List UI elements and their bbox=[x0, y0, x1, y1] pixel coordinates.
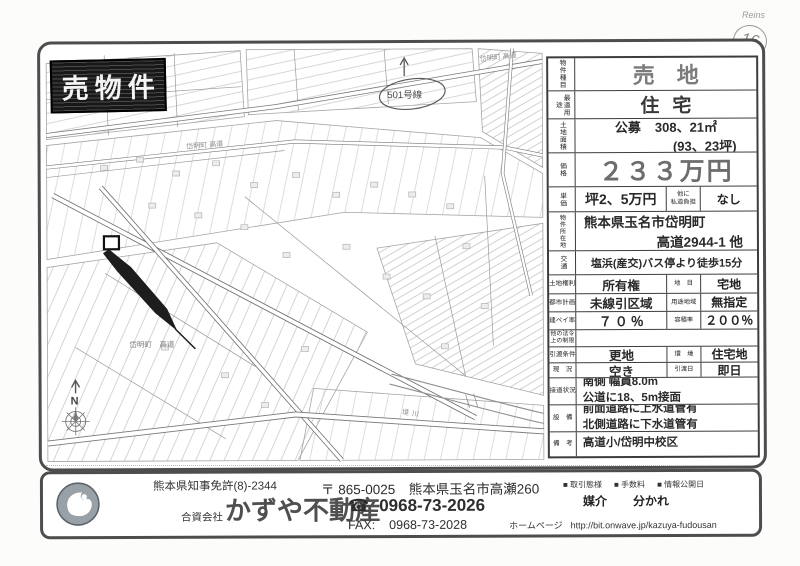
row-property-type: 物件種目 売地 bbox=[548, 57, 756, 91]
unit-price-label: 単価 bbox=[558, 192, 566, 207]
separator-dotted-line bbox=[46, 465, 752, 466]
land-area-value: 公募308、21㎡ bbox=[615, 118, 717, 135]
handover-date-value: 即日 bbox=[701, 362, 757, 376]
road-access-label: 接道状況 bbox=[550, 388, 576, 396]
for-sale-stamp-text: 売物件 bbox=[61, 65, 161, 106]
zoning-label: 用途地域 bbox=[666, 294, 701, 311]
transport-value: 塩浜(産交)バス停より徒歩15分 bbox=[591, 254, 742, 271]
location-line1: 熊本県玉名市岱明町 bbox=[576, 211, 706, 231]
row-location: 物件所在地 熊本県玉名市岱明町 高道2944-1 他 bbox=[549, 211, 757, 251]
scanned-property-flyer: Reins 16 bbox=[0, 0, 800, 566]
svg-text:501号線: 501号線 bbox=[387, 89, 422, 101]
company-logo bbox=[55, 481, 101, 527]
row-remarks: 備 考 高道小/岱明中校区 bbox=[550, 431, 758, 456]
disclosure-date-label: ■ 情報公開日 bbox=[657, 480, 704, 489]
city-planning-label: 都市計画 bbox=[549, 299, 575, 307]
listing-table: 物件種目 売地 最適用途 住宅 土地面積 公募308、21㎡ (93、23坪) … bbox=[546, 55, 760, 458]
homepage-label: ホームページ bbox=[509, 520, 563, 530]
row-facilities: 設 備 前面道路に上水道管有 北側道路に下水道管有 bbox=[550, 404, 758, 432]
handover-date-label: 引渡日 bbox=[666, 363, 701, 377]
best-use-value: 住宅 bbox=[640, 91, 704, 118]
land-rights-value: 所有権 bbox=[602, 275, 640, 293]
coverage-ratio-label: 建ペイ率 bbox=[549, 317, 575, 325]
best-use-label: 最適用途 bbox=[553, 91, 569, 118]
transport-label: 交通 bbox=[558, 255, 566, 270]
road-access-line1: 南側 幅員8.0m bbox=[577, 377, 658, 391]
facilities-line2: 北側道路に下水道管有 bbox=[577, 418, 698, 432]
bird-icon bbox=[57, 483, 99, 525]
location-line2: 高道2944-1 他 bbox=[657, 230, 757, 250]
map-label-bottom: 岱明町 高道 bbox=[129, 339, 175, 349]
city-planning-value: 未線引区域 bbox=[590, 294, 653, 311]
road-access-line2: 公道に18、5m接面 bbox=[577, 391, 681, 404]
coverage-ratio-value: ７０％ bbox=[599, 312, 647, 329]
land-rights-label: 土地権利 bbox=[549, 281, 575, 289]
row-transport: 交通 塩浜(産交)バス停より徒歩15分 bbox=[549, 250, 757, 275]
row-current-status: 現 況 空き 引渡日 即日 bbox=[549, 362, 757, 378]
handover-value: 更地 bbox=[609, 347, 634, 362]
row-unit-price: 単価 坪2、5万円 他に私道負担 なし bbox=[549, 186, 757, 212]
unit-price-value: 坪2、5万円 bbox=[585, 189, 657, 209]
row-price: 価格 ２３３万円 bbox=[549, 152, 757, 187]
zoning-value: 無指定 bbox=[701, 293, 757, 310]
fax-number: 0968-73-2028 bbox=[389, 518, 467, 532]
for-sale-stamp: 売物件 bbox=[50, 58, 167, 114]
property-type-value: 売地 bbox=[633, 58, 721, 90]
fax-line: FAX:0968-73-2028 bbox=[348, 518, 467, 532]
deal-terms-labels: ■ 取引態様■ 手数料■ 情報公開日 bbox=[563, 479, 716, 491]
handwritten-reins-note: Reins bbox=[742, 10, 765, 20]
private-road-label: 他に私道負担 bbox=[666, 187, 701, 211]
row-land-rights: 土地権利 所有権 地 目 宅地 bbox=[549, 274, 757, 294]
remarks-label: 備 考 bbox=[553, 441, 573, 449]
row-coverage-ratio: 建ペイ率 ７０％ 容積率 ２００％ bbox=[549, 311, 757, 330]
row-land-area: 土地面積 公募308、21㎡ (93、23坪) bbox=[548, 118, 756, 153]
facilities-label: 設 備 bbox=[553, 415, 573, 423]
fax-label: FAX: bbox=[348, 518, 375, 532]
fee-value: 分かれ bbox=[633, 494, 669, 508]
location-label: 物件所在地 bbox=[558, 214, 565, 248]
environment-value: 住宅地 bbox=[701, 346, 757, 361]
deal-type-label: ■ 取引態様 bbox=[563, 480, 602, 489]
floor-area-ratio-value: ２００％ bbox=[701, 311, 757, 328]
fee-label: ■ 手数料 bbox=[614, 480, 645, 489]
remarks-value: 高道小/岱明中校区 bbox=[577, 436, 678, 452]
row-best-use: 最適用途 住宅 bbox=[548, 90, 756, 119]
land-area-label: 土地面積 bbox=[558, 121, 566, 150]
deal-type-value: 媒介 bbox=[583, 494, 607, 508]
svg-text:N: N bbox=[71, 395, 79, 407]
row-city-planning: 都市計画 未線引区域 用途地域 無指定 bbox=[549, 293, 757, 312]
handover-label: 引渡条件 bbox=[549, 351, 575, 359]
price-label: 価格 bbox=[558, 162, 566, 177]
facilities-line1: 前面道路に上水道管有 bbox=[577, 404, 698, 418]
land-area-tsubo: (93、23坪) bbox=[673, 135, 757, 152]
current-status-label: 現 況 bbox=[553, 367, 573, 375]
phone-line: ☎0968-73-2026 bbox=[348, 496, 379, 516]
current-status-value: 空き bbox=[609, 363, 634, 377]
floor-area-ratio-label: 容積率 bbox=[666, 312, 701, 329]
property-type-label: 物件種目 bbox=[557, 60, 565, 89]
land-category-value: 宅地 bbox=[701, 274, 757, 292]
telephone-icon: ☎ bbox=[348, 496, 369, 515]
company-entity-type: 合資会社 bbox=[181, 510, 223, 525]
environment-label: 環 境 bbox=[666, 347, 701, 362]
price-value: ２３３万円 bbox=[599, 152, 734, 186]
homepage-url: http://bit.onwave.jp/kazuya-fudousan bbox=[571, 520, 717, 531]
deal-terms-values: 媒介分かれ bbox=[583, 492, 669, 509]
land-category-label: 地 目 bbox=[666, 275, 701, 293]
property-sheet: 岱明町 高道 岱明町 高道 岱明町 高道 境川 501号線 bbox=[37, 38, 767, 471]
phone-number: 0968-73-2026 bbox=[379, 496, 485, 516]
homepage-line: ホームページhttp://bit.onwave.jp/kazuya-fudous… bbox=[509, 518, 717, 532]
company-info-bar: 熊本県知事免許(8)-2344 合資会社 かずや不動産 〒 865-0025 熊… bbox=[40, 469, 762, 540]
row-road-access: 接道状況 南側 幅員8.0m 公道に18、5m接面 bbox=[550, 377, 758, 405]
other-laws-label: 他の法令上の制限 bbox=[549, 330, 576, 346]
private-road-value: なし bbox=[701, 186, 757, 210]
